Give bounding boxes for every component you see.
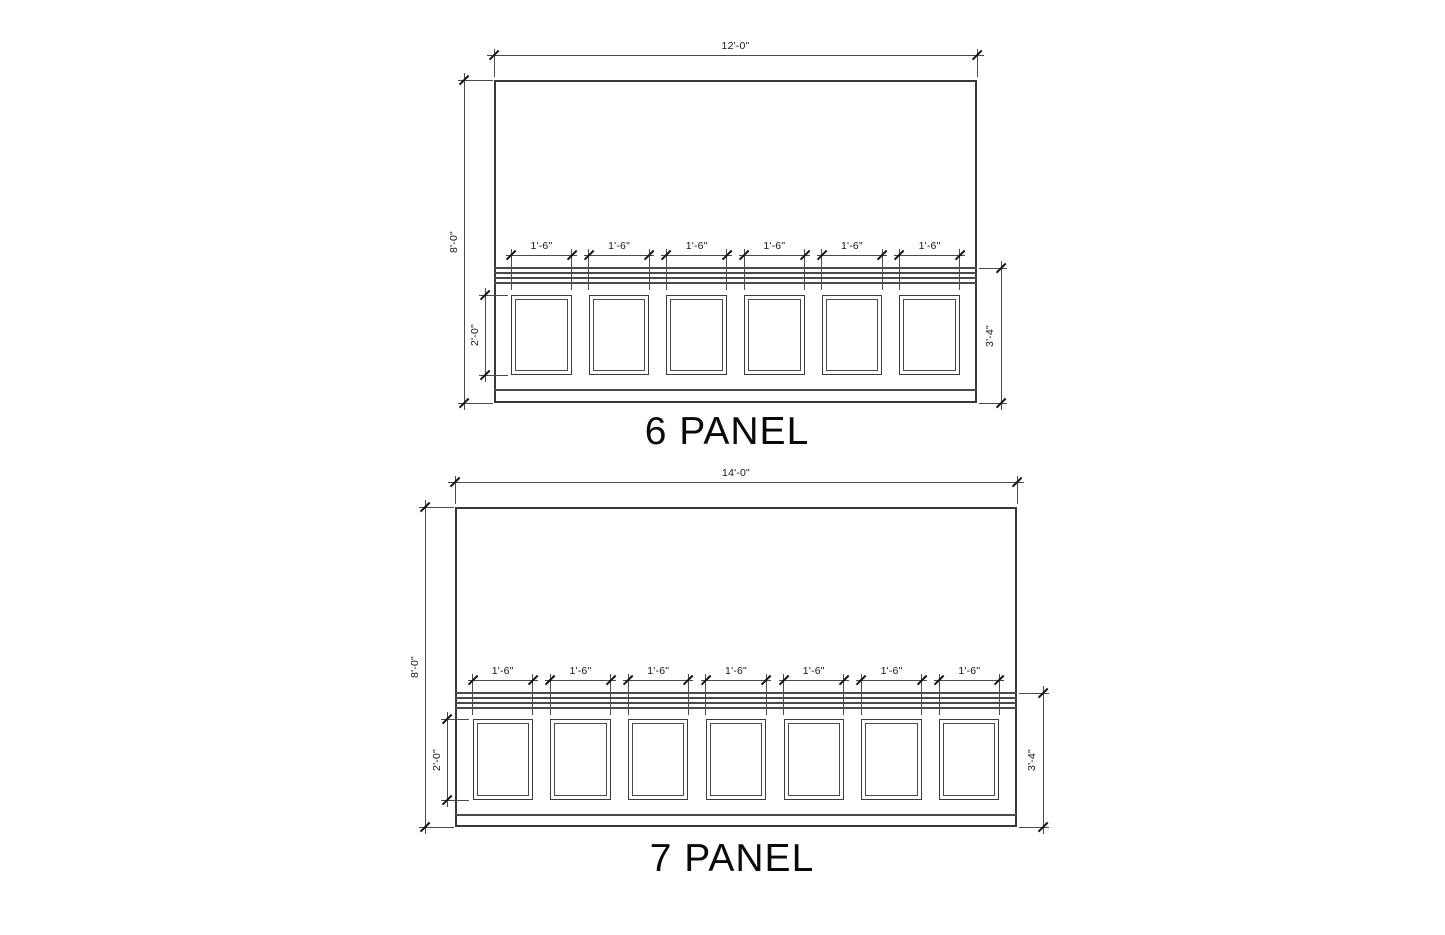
chair-rail-line	[455, 707, 1017, 708]
panel-width-dim-line	[856, 680, 926, 681]
panel-width-dim-label: 1'-6"	[881, 665, 903, 677]
wainscot-panel	[784, 719, 844, 800]
panel-inner-molding	[865, 723, 917, 796]
panel-width-dim-label: 1'-6"	[803, 665, 825, 677]
panel-width-dim-line	[779, 680, 849, 681]
chair-rail-line	[455, 697, 1017, 698]
panel-width-dim-line	[623, 680, 693, 681]
wall-width-dim-label: 14'-0"	[722, 467, 750, 479]
panel-inner-molding	[943, 723, 995, 796]
panel-width-dim-line	[468, 680, 538, 681]
chair-rail-line	[455, 692, 1017, 693]
chair-rail-line	[455, 702, 1017, 703]
wainscot-height-dim-label: 3'-4"	[1026, 749, 1038, 771]
wall-width-dim-line	[448, 482, 1024, 483]
wainscot-panel	[550, 719, 610, 800]
wainscot-panel	[628, 719, 688, 800]
panel-inner-molding	[554, 723, 606, 796]
drawing-sheet: 6 PANEL 1'-6"1'-6"1'-6"1'-6"1'-6"1'-6"12…	[0, 0, 1445, 935]
wainscot-panel	[706, 719, 766, 800]
panel-width-dim-label: 1'-6"	[569, 665, 591, 677]
panel-width-dim-line	[701, 680, 771, 681]
wall-height-dim-line	[425, 500, 426, 834]
panel-width-dim-label: 1'-6"	[958, 665, 980, 677]
wainscot-panel	[861, 719, 921, 800]
wainscot-height-dim-line	[1043, 686, 1044, 834]
wainscot-panel	[473, 719, 533, 800]
panel-width-dim-line	[545, 680, 615, 681]
panel-width-dim-label: 1'-6"	[492, 665, 514, 677]
panel-inner-molding	[632, 723, 684, 796]
elevation-7-panel: 7 PANEL 1'-6"1'-6"1'-6"1'-6"1'-6"1'-6"1'…	[0, 0, 1445, 935]
panel-width-dim-label: 1'-6"	[647, 665, 669, 677]
panel-inner-molding	[788, 723, 840, 796]
drawing-title: 7 PANEL	[650, 837, 815, 881]
panel-inner-molding	[477, 723, 529, 796]
panel-width-dim-line	[934, 680, 1004, 681]
panel-height-dim-line	[447, 712, 448, 807]
baseboard-line	[455, 814, 1017, 816]
panel-inner-molding	[710, 723, 762, 796]
panel-width-dim-label: 1'-6"	[725, 665, 747, 677]
panel-height-dim-label: 2'-0"	[431, 749, 443, 771]
wall-height-dim-label: 8'-0"	[409, 656, 421, 678]
wainscot-panel	[939, 719, 999, 800]
